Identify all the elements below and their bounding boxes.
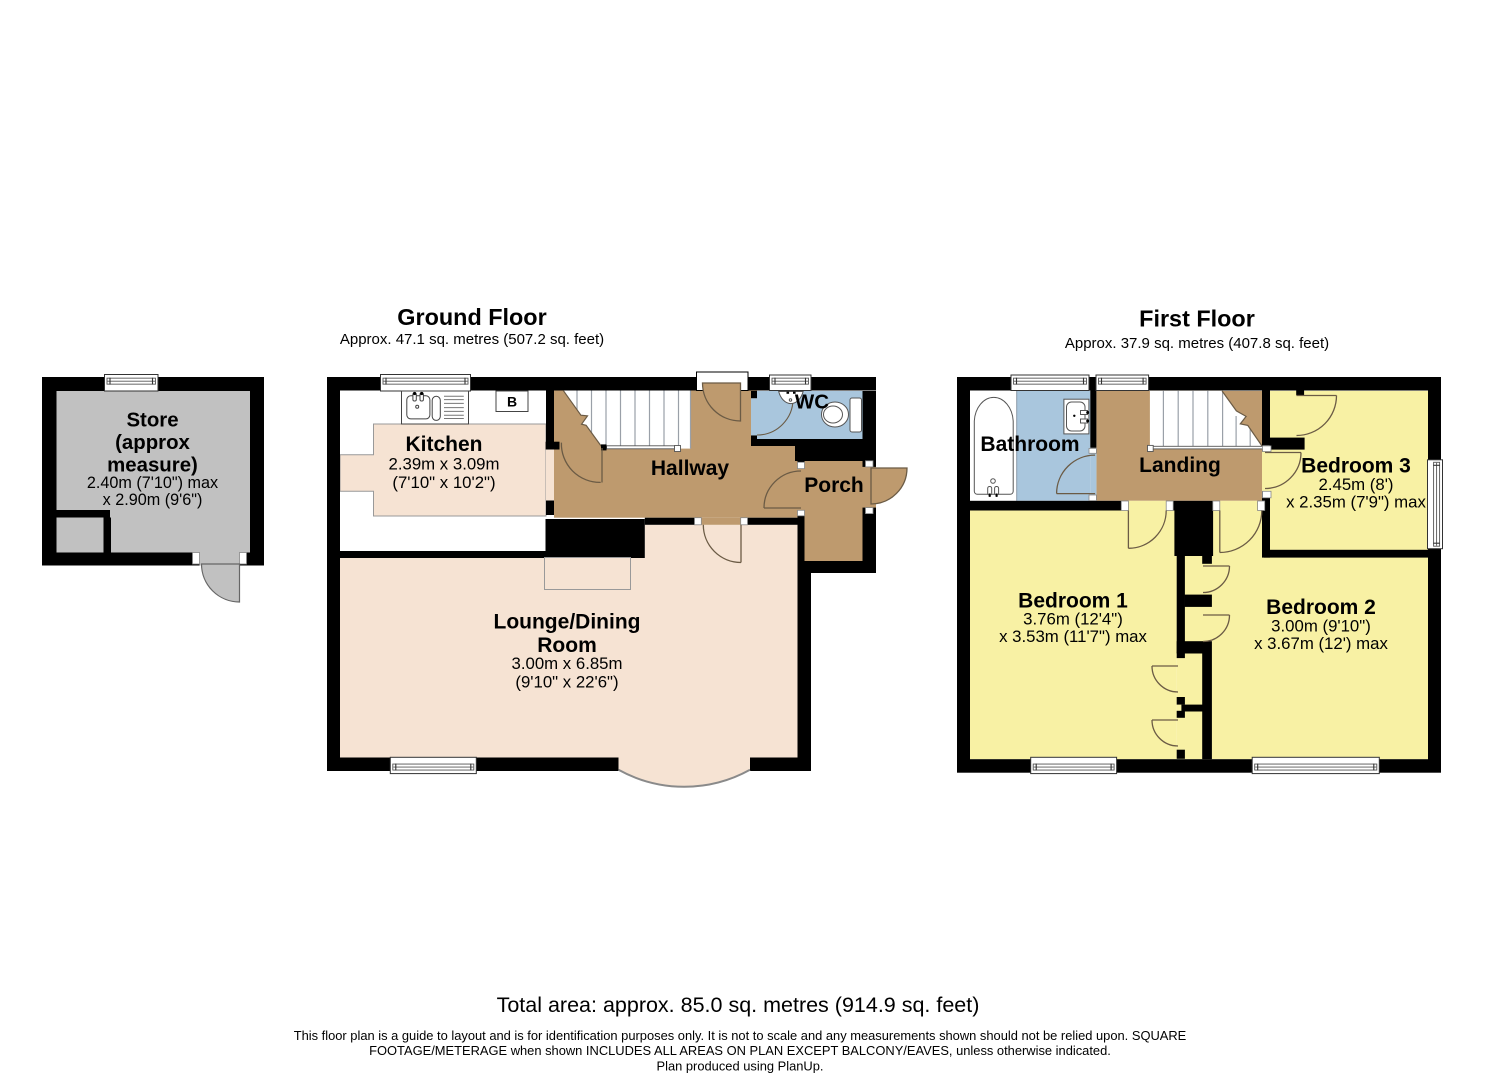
svg-text:(7'10" x 10'2"): (7'10" x 10'2") [392,473,495,492]
svg-text:Hallway: Hallway [651,457,730,480]
svg-text:x 3.53m (11'7") max: x 3.53m (11'7") max [999,627,1147,646]
svg-text:3.00m (9'10"): 3.00m (9'10") [1271,617,1371,636]
svg-text:Ground Floor: Ground Floor [397,304,546,330]
svg-text:WC: WC [795,391,829,414]
svg-text:2.40m (7'10") max: 2.40m (7'10") max [87,474,218,492]
svg-text:Store: Store [126,410,178,432]
svg-text:Plan produced using PlanUp.: Plan produced using PlanUp. [657,1059,824,1074]
svg-text:3.76m (12'4"): 3.76m (12'4") [1023,610,1123,629]
svg-text:(9'10" x 22'6"): (9'10" x 22'6") [515,673,618,692]
svg-text:x 3.67m (12') max: x 3.67m (12') max [1254,634,1388,653]
svg-text:Landing: Landing [1139,454,1221,477]
svg-text:2.39m x 3.09m: 2.39m x 3.09m [389,455,500,474]
svg-text:(approx: (approx [115,432,190,454]
svg-text:Porch: Porch [804,474,864,497]
svg-text:3.00m x 6.85m: 3.00m x 6.85m [512,654,623,673]
svg-text:This floor plan is a guide to: This floor plan is a guide to layout and… [294,1028,1187,1043]
svg-text:Lounge/Dining: Lounge/Dining [494,611,641,634]
svg-text:FOOTAGE/METERAGE when shown IN: FOOTAGE/METERAGE when shown INCLUDES ALL… [369,1043,1111,1058]
svg-text:x 2.90m (9'6"): x 2.90m (9'6") [103,491,203,509]
svg-text:Approx. 47.1 sq. metres (507.2: Approx. 47.1 sq. metres (507.2 sq. feet) [340,331,604,348]
svg-text:Kitchen: Kitchen [405,433,482,456]
svg-text:First Floor: First Floor [1139,306,1255,332]
svg-text:x 2.35m (7'9") max: x 2.35m (7'9") max [1286,493,1426,512]
svg-text:Approx. 37.9 sq. metres (407.8: Approx. 37.9 sq. metres (407.8 sq. feet) [1065,335,1329,352]
svg-text:Total area: approx. 85.0 sq. m: Total area: approx. 85.0 sq. metres (914… [497,993,980,1017]
svg-text:Bathroom: Bathroom [980,433,1079,456]
svg-text:B: B [507,394,517,410]
svg-text:2.45m (8'): 2.45m (8') [1318,475,1393,494]
